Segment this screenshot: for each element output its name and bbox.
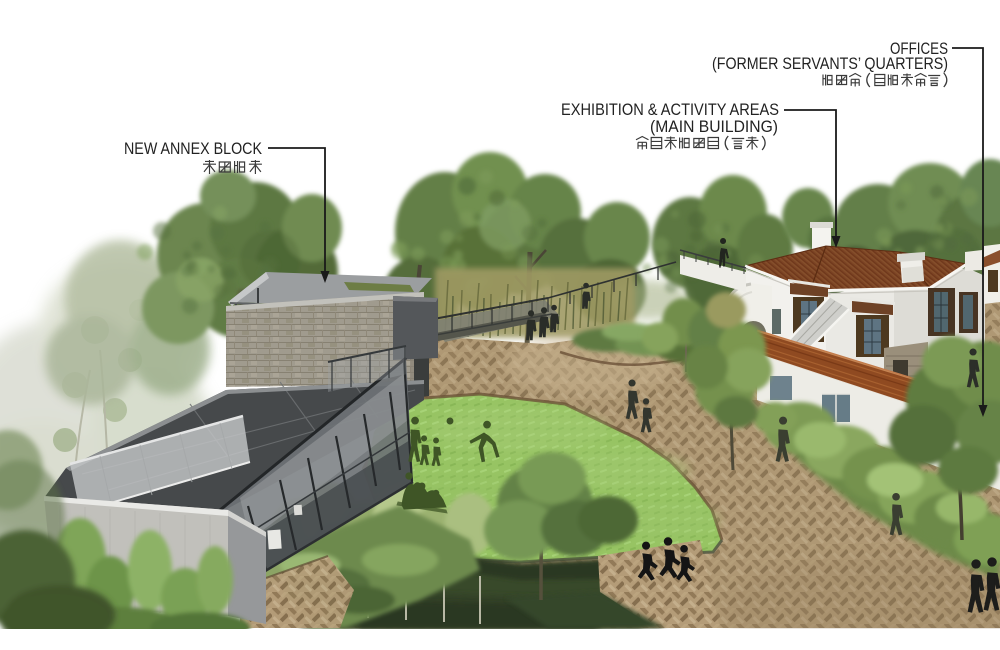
svg-text:(MAIN BUILDING): (MAIN BUILDING) (650, 117, 778, 136)
svg-text:(FORMER SERVANTS’ QUARTERS): (FORMER SERVANTS’ QUARTERS) (712, 54, 948, 73)
svg-text:NEW ANNEX BLOCK: NEW ANNEX BLOCK (124, 139, 263, 158)
